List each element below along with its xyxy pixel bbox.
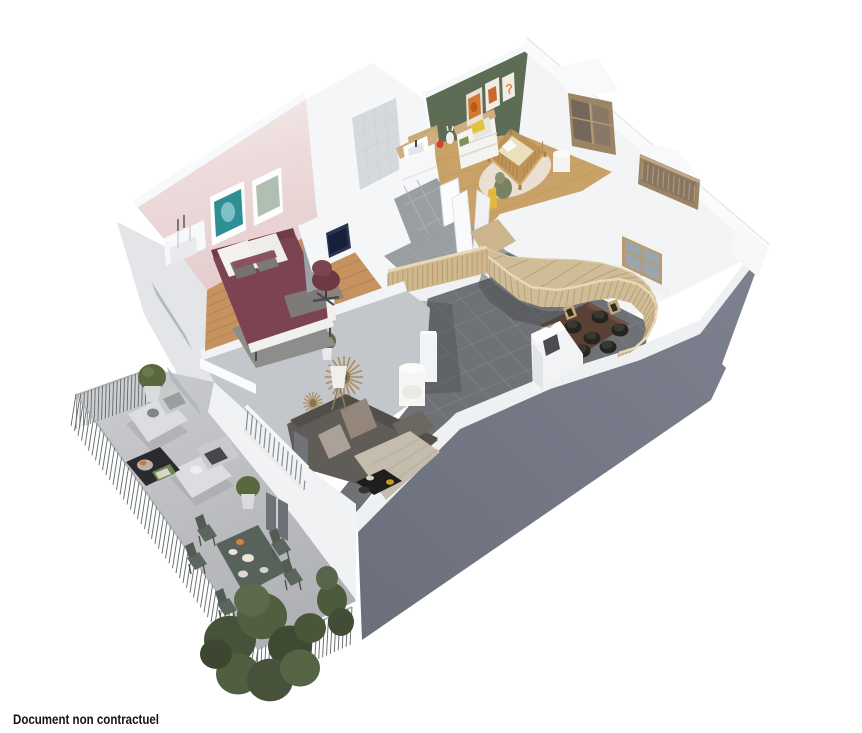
svg-text:Document non contractuel: Document non contractuel — [13, 711, 159, 727]
